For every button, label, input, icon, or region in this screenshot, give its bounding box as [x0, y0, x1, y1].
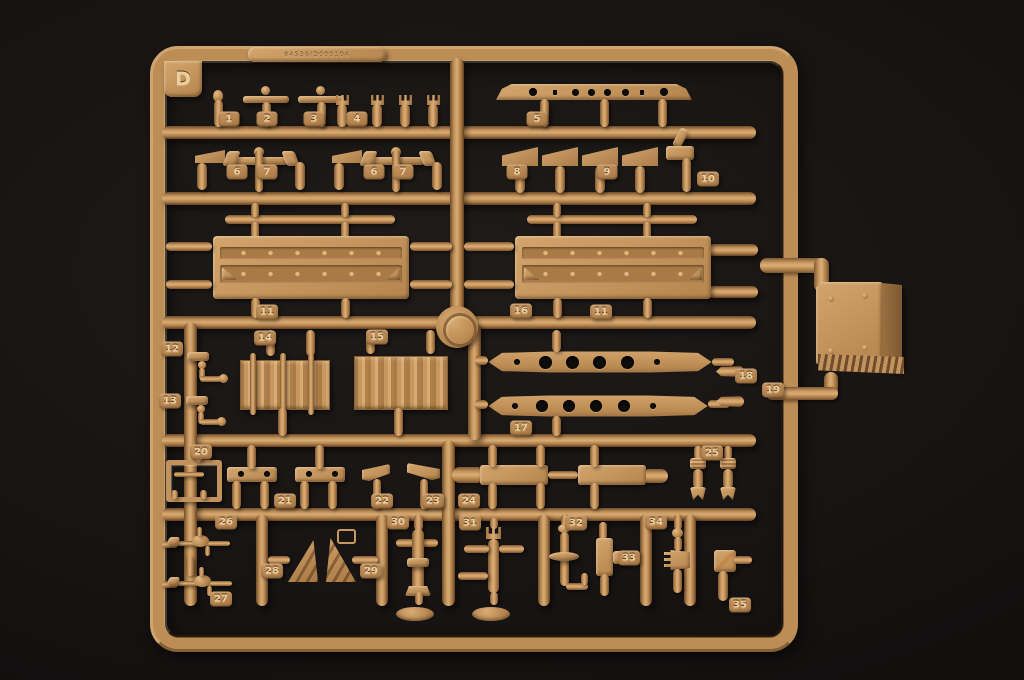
part-34-neck	[674, 537, 682, 551]
part-16-hole	[621, 356, 634, 369]
part-number-tab-5: 5	[527, 112, 548, 127]
rail-stub-right-b	[706, 286, 758, 298]
part-11-rivet-strip	[220, 265, 402, 283]
part-32-disc	[549, 552, 579, 561]
part-31-arm	[458, 572, 488, 580]
part-number-tab-33: 33	[618, 551, 640, 566]
part-11-rivet-strip	[522, 247, 704, 259]
part-number-tab-11: 11	[590, 305, 612, 320]
sprue-gate	[552, 416, 561, 436]
sprue-gate	[328, 481, 337, 509]
part-number-tab-32: 32	[565, 516, 587, 531]
sprue-gate	[232, 481, 241, 509]
box-rivet	[828, 348, 834, 354]
sprue-gate	[553, 298, 562, 318]
part-number-tab-13: 13	[159, 394, 181, 409]
part-number-tab-11: 11	[256, 305, 278, 320]
sprue-letter: D	[175, 68, 191, 90]
sprue-gate	[555, 166, 565, 193]
part-number-tab-22: 22	[371, 494, 393, 509]
sprue-gate	[590, 483, 599, 509]
part-number-tab-6: 6	[227, 165, 248, 180]
part-number-tab-21: 21	[274, 494, 296, 509]
sprue-gate	[488, 445, 497, 467]
part-5-slot	[553, 90, 557, 95]
part-16-hole	[654, 359, 660, 365]
box-part-face	[816, 282, 882, 364]
part-15-panel	[354, 356, 448, 410]
part-number-tab-24: 24	[458, 494, 480, 509]
part-number-tab-19: 19	[762, 383, 784, 398]
box-rivet	[828, 296, 834, 302]
part-5-hole	[622, 89, 629, 96]
part-24-cap	[646, 469, 668, 483]
rail-v-center	[450, 58, 464, 324]
part-number-tab-30: 30	[387, 515, 409, 530]
part-12	[187, 352, 209, 361]
part-4-body	[372, 104, 382, 127]
part-16-hole	[539, 356, 552, 369]
part-number-tab-27: 27	[210, 592, 232, 607]
sprue-gate	[643, 203, 651, 217]
sprue-gate	[635, 166, 645, 193]
sprue-gate	[432, 162, 442, 190]
part-21-hole	[332, 471, 338, 477]
part-number-tab-16: 16	[510, 304, 532, 319]
ejector-pad	[396, 607, 434, 621]
part-number-tab-17: 17	[510, 421, 532, 436]
panel-11-hanger	[225, 215, 395, 224]
rail-v-32	[538, 514, 550, 606]
rail-stub-right-a	[706, 244, 758, 256]
part-6-gate	[334, 163, 344, 190]
part-25-body	[723, 469, 733, 489]
sprue-gate	[260, 481, 269, 509]
part-5-hole	[604, 89, 611, 96]
part-2-knob	[261, 86, 270, 95]
part-24-bar	[578, 465, 646, 485]
sprue-gate	[536, 483, 545, 509]
part-13	[186, 396, 208, 405]
part-17-hole	[536, 400, 548, 412]
part-20-leg	[171, 490, 178, 499]
part-14-latch	[308, 353, 314, 415]
sprue-gate	[474, 356, 488, 365]
sprue-gate	[464, 242, 514, 251]
part-29-loop	[337, 529, 356, 544]
part-30-collar	[407, 558, 429, 567]
sprue-gate	[251, 203, 259, 217]
part-5-hole	[572, 89, 579, 96]
part-number-tab-28: 28	[261, 564, 283, 579]
panel-11-hanger	[527, 215, 697, 224]
sprue-gate	[166, 242, 212, 251]
part-20-leg	[200, 490, 207, 499]
part-11-rivet-strip	[220, 247, 402, 259]
part-number-tab-31: 31	[459, 516, 481, 531]
sprue-gate	[300, 481, 309, 509]
sprue-gate	[488, 483, 497, 509]
part-31-body	[488, 539, 499, 593]
sprue-gate	[734, 556, 752, 564]
part-number-tab-2: 2	[257, 112, 278, 127]
part-number-tab-25: 25	[701, 446, 723, 461]
part-17-hole	[563, 400, 575, 412]
part-31-arm	[499, 545, 524, 553]
sprue-gate	[712, 358, 734, 366]
part-32-foot-post	[581, 573, 588, 585]
part-number-tab-14: 14	[254, 331, 276, 346]
sprue-gate	[426, 330, 435, 354]
box-grille	[818, 354, 904, 374]
part-number-tab-18: 18	[735, 369, 757, 384]
part-3-knob	[316, 86, 325, 95]
sprue-gate	[536, 445, 545, 467]
part-35-plate	[714, 550, 736, 572]
part-5-hole	[660, 88, 668, 96]
part-4-body	[428, 104, 438, 127]
part-26-grip	[205, 546, 210, 556]
part-number-tab-1: 1	[219, 112, 240, 127]
part-number-tab-4: 4	[347, 112, 368, 127]
part-5-hole	[529, 88, 537, 96]
box-part-side	[882, 283, 902, 369]
box-rivet	[862, 293, 868, 299]
part-21-hole	[264, 471, 270, 477]
sprue-gate	[247, 445, 256, 469]
part-number-tab-35: 35	[729, 598, 751, 613]
sprue-gate	[643, 298, 652, 318]
part-25-cap	[720, 458, 736, 469]
sprue-gate	[464, 280, 514, 289]
part-6-gate	[197, 163, 207, 190]
part-10-body	[666, 146, 694, 160]
part-24-bar	[480, 465, 548, 485]
part-20-bar	[174, 472, 204, 477]
sprue-gate	[394, 408, 403, 436]
sprue-gate	[341, 203, 349, 217]
part-16-hole	[514, 359, 520, 365]
part-number-tab-10: 10	[697, 172, 719, 187]
sprue-photo: D 84536/D000104	[0, 0, 1024, 680]
part-number-tab-6: 6	[364, 165, 385, 180]
part-19-knob	[716, 396, 744, 407]
part-number-tab-7: 7	[257, 165, 278, 180]
part-17-hole	[590, 400, 602, 412]
sprue-gate	[553, 203, 561, 217]
part-5-hole	[588, 89, 595, 96]
part-number-tab-23: 23	[422, 494, 444, 509]
sprue-gate	[474, 400, 488, 409]
part-11-rivet-strip	[522, 265, 704, 283]
part-number-tab-20: 20	[190, 445, 212, 460]
sprue-gate	[410, 242, 452, 251]
part-17-hole	[512, 403, 518, 409]
sprue-gate	[341, 298, 350, 318]
molding-code-plate: 84536/D000104	[248, 47, 386, 62]
part-31-arm	[464, 545, 489, 553]
sprue-gate	[410, 280, 452, 289]
ejector-pad	[472, 607, 510, 621]
part-14-latch	[250, 353, 256, 415]
sprue-gate	[186, 556, 194, 576]
part-number-tab-15: 15	[366, 330, 388, 345]
sprue-gate	[295, 162, 305, 190]
part-number-tab-26: 26	[215, 515, 237, 530]
part-21-hole	[306, 471, 312, 477]
sprue-gate	[166, 280, 212, 289]
part-14-latch	[280, 353, 286, 415]
part-16-hole	[566, 356, 579, 369]
part-17-hole	[650, 403, 656, 409]
sprue-gate	[600, 99, 609, 127]
part-24-nose	[452, 467, 480, 483]
part-number-tab-29: 29	[360, 564, 382, 579]
part-4-body	[400, 104, 410, 127]
sprue-gate	[490, 592, 498, 605]
sprue-gate	[658, 99, 667, 127]
part-number-tab-3: 3	[304, 112, 325, 127]
part-35-post	[718, 571, 728, 601]
sprue-gate	[682, 158, 691, 192]
molding-code: 84536/D000104	[284, 51, 350, 59]
part-25-body	[693, 469, 703, 489]
part-31-fork	[486, 527, 501, 539]
part-12-rod-head	[219, 374, 228, 383]
part-16-hole	[593, 356, 606, 369]
part-34-comb	[664, 550, 690, 570]
part-number-tab-12: 12	[161, 342, 183, 357]
part-26-sight	[197, 527, 202, 536]
part-number-tab-7: 7	[393, 165, 414, 180]
part-number-tab-8: 8	[507, 165, 528, 180]
sprue-letter-plate: D	[164, 61, 202, 97]
part-24-link	[548, 471, 578, 479]
box-rivet	[862, 345, 868, 351]
sprue-gate	[590, 445, 599, 467]
sprue-gate	[552, 330, 561, 352]
sprue-gate	[278, 408, 287, 436]
part-13-rod-head	[217, 417, 226, 426]
part-33-plate	[596, 538, 613, 576]
part-33-post	[600, 574, 609, 596]
part-number-tab-9: 9	[597, 165, 618, 180]
part-17-hole	[618, 400, 630, 412]
part-4-body	[337, 104, 347, 127]
part-21-hole	[238, 471, 244, 477]
sprue-gate	[315, 445, 324, 469]
part-5-slot	[640, 90, 644, 95]
rail-v-24	[442, 440, 455, 606]
part-27-sight	[199, 567, 204, 576]
sprue-gate	[415, 592, 423, 605]
center-disc-ring	[443, 313, 477, 347]
part-number-tab-34: 34	[645, 515, 667, 530]
rail-v-28	[256, 514, 268, 606]
part-34-post	[673, 569, 682, 593]
